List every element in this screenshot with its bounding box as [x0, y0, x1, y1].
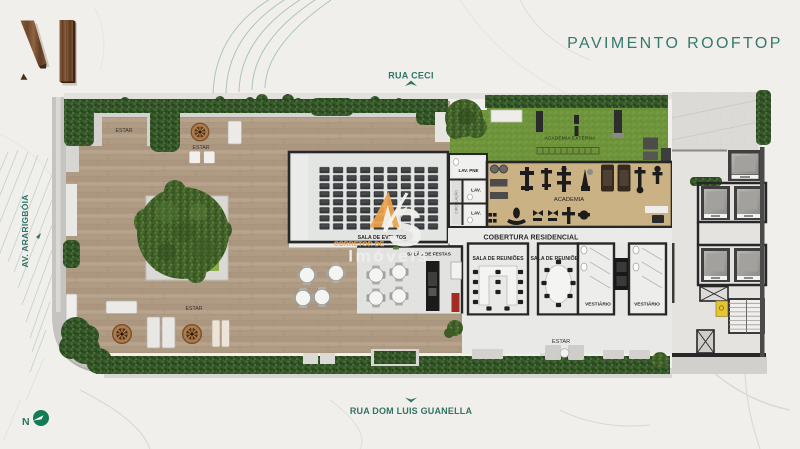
svg-text:ESTAR: ESTAR — [552, 339, 570, 345]
svg-text:N: N — [22, 416, 30, 428]
svg-text:ESTAR: ESTAR — [193, 145, 210, 151]
svg-text:LAV.: LAV. — [471, 211, 481, 216]
svg-text:Imóveis: Imóveis — [348, 247, 430, 266]
svg-text:CIRCULAÇÃO: CIRCULAÇÃO — [454, 190, 459, 214]
svg-text:RUA CECI: RUA CECI — [388, 71, 434, 81]
svg-text:LAV.: LAV. — [471, 188, 481, 193]
svg-text:LAV. PNE: LAV. PNE — [458, 168, 478, 173]
svg-text:COBERTURA RESIDENCIAL: COBERTURA RESIDENCIAL — [484, 235, 580, 242]
svg-text:VESTIÁRIO: VESTIÁRIO — [634, 301, 660, 308]
svg-text:AV. ARARIGBÓIA: AV. ARARIGBÓIA — [19, 194, 30, 267]
svg-text:ESTAR: ESTAR — [186, 306, 203, 312]
svg-text:ACADEMIA: ACADEMIA — [554, 197, 584, 203]
svg-text:RUA DOM LUIS GUANELLA: RUA DOM LUIS GUANELLA — [350, 406, 473, 416]
svg-text:VESTIÁRIO: VESTIÁRIO — [585, 301, 611, 308]
svg-text:SALA DE REUNIÕES: SALA DE REUNIÕES — [472, 255, 524, 262]
svg-text:ESTAR: ESTAR — [116, 128, 133, 134]
svg-text:PAVIMENTO ROOFTOP: PAVIMENTO ROOFTOP — [567, 35, 783, 52]
svg-text:ACADEMIA EXTERNA: ACADEMIA EXTERNA — [545, 136, 597, 141]
